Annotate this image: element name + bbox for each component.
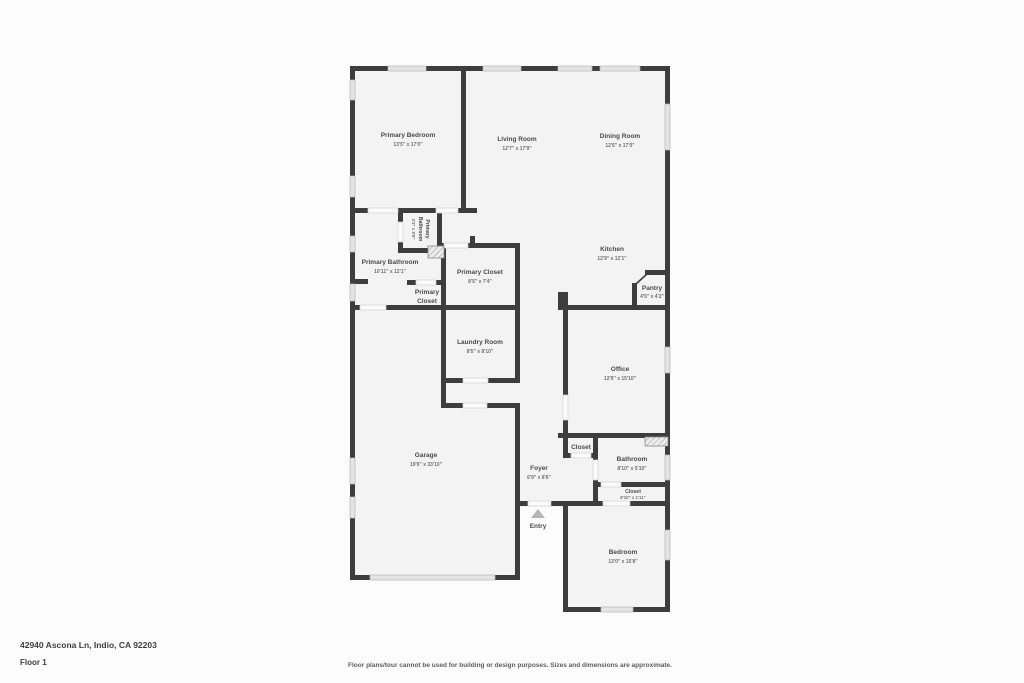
room-dims-primary-bathroom-small: 3'3" x 5'6" [411,219,416,240]
room-label-laundry-room: Laundry Room [457,339,503,346]
room-dims-primary-bathroom: 10'11" x 12'1" [374,269,406,275]
room-dims-garage: 19'9" x 33'10" [410,462,443,468]
disclaimer-text: Floor plans/tour cannot be used for buil… [260,662,760,669]
room-label-primary-closet-small-line2: Closet [417,298,438,305]
room-dims-pantry: 4'5" x 4'2" [640,294,664,300]
room-label-primary-bedroom: Primary Bedroom [381,132,436,139]
room-label-pantry: Pantry [642,285,663,292]
room-label-primary-bathroom-small: Primary Bathroom 3'3" x 5'6" [411,217,430,242]
room-label-kitchen: Kitchen [600,246,624,253]
room-label-primary-closet-small-line1: Primary [415,289,440,296]
room-label-primary-bathroom-small-line1: Primary [424,219,430,238]
floor-plan: Primary Bedroom 13'5" x 17'0" Living Roo… [0,0,1024,683]
room-dims-laundry-room: 8'5" x 8'10" [467,349,494,355]
room-label-primary-bathroom-small-line2: Bathroom [417,217,423,242]
entry-label: Entry [530,523,547,530]
room-dims-primary-closet: 8'5" x 7'4" [468,279,492,285]
room-label-living-room: Living Room [497,136,537,143]
room-label-office: Office [611,366,630,373]
room-label-bathroom: Bathroom [617,456,648,463]
room-dims-dining-room: 12'6" x 17'0" [605,143,635,149]
entry-arrow-icon [531,509,545,518]
room-label-bedroom: Bedroom [609,549,638,556]
floor-plan-page: Primary Bedroom 13'5" x 17'0" Living Roo… [0,0,1024,683]
room-dims-foyer: 6'9" x 8'6" [527,475,551,481]
room-dims-office: 12'9" x 15'10" [604,376,637,382]
room-label-foyer: Foyer [530,465,548,472]
room-dims-primary-bedroom: 13'5" x 17'0" [393,142,423,148]
room-dims-kitchen: 12'9" x 12'1" [597,256,627,262]
room-dims-bathroom: 8'10" x 5'10" [617,466,647,472]
room-label-garage: Garage [415,452,438,459]
room-dims-living-room: 12'7" x 17'9" [502,146,532,152]
address-text: 42940 Ascona Ln, Indio, CA 92203 [20,640,157,650]
room-label-closet-hall: Closet [571,444,592,451]
room-dims-bedroom: 13'0" x 15'8" [608,559,638,565]
room-label-dining-room: Dining Room [600,133,641,140]
room-dims-closet-bedroom: 8'10" x 1'11" [620,495,646,500]
room-label-primary-bathroom: Primary Bathroom [362,259,419,266]
floor-label: Floor 1 [20,658,47,667]
room-label-primary-closet: Primary Closet [457,269,504,276]
